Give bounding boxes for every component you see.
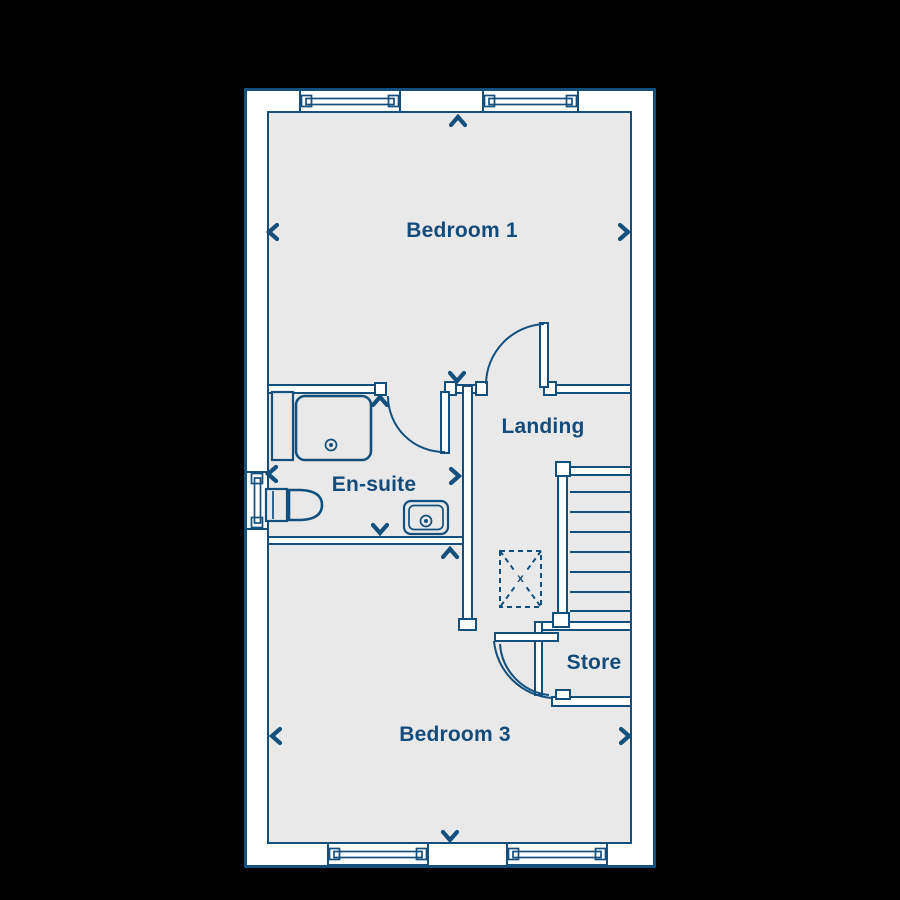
room-label-landing: Landing bbox=[501, 415, 584, 439]
window-icon-bottom-left bbox=[328, 843, 428, 865]
room-label-store: Store bbox=[567, 651, 622, 675]
wash-basin-icon bbox=[404, 501, 448, 534]
shower-icon bbox=[272, 392, 371, 460]
floorplan-drawing bbox=[0, 0, 900, 900]
room-label-bedroom-3: Bedroom 3 bbox=[399, 723, 511, 747]
window-icon-top-right bbox=[483, 90, 578, 112]
room-label-ensuite: En-suite bbox=[332, 473, 416, 497]
toilet-icon bbox=[266, 489, 322, 521]
shower-screen bbox=[272, 392, 293, 460]
newel-post-bottom bbox=[553, 613, 569, 627]
window-icon-left bbox=[246, 472, 268, 529]
newel-post-top bbox=[556, 462, 570, 476]
toilet-bowl bbox=[289, 490, 322, 520]
stair-handrail bbox=[558, 471, 567, 620]
cistern bbox=[266, 489, 287, 521]
loft-hatch-x-glyph: x bbox=[517, 571, 524, 585]
room-label-bedroom-1: Bedroom 1 bbox=[406, 219, 518, 243]
floorplan-canvas: Bedroom 1 Landing En-suite Store Bedroom… bbox=[0, 0, 900, 900]
window-icon-top-left bbox=[300, 90, 400, 112]
window-icon-bottom-right bbox=[507, 843, 607, 865]
